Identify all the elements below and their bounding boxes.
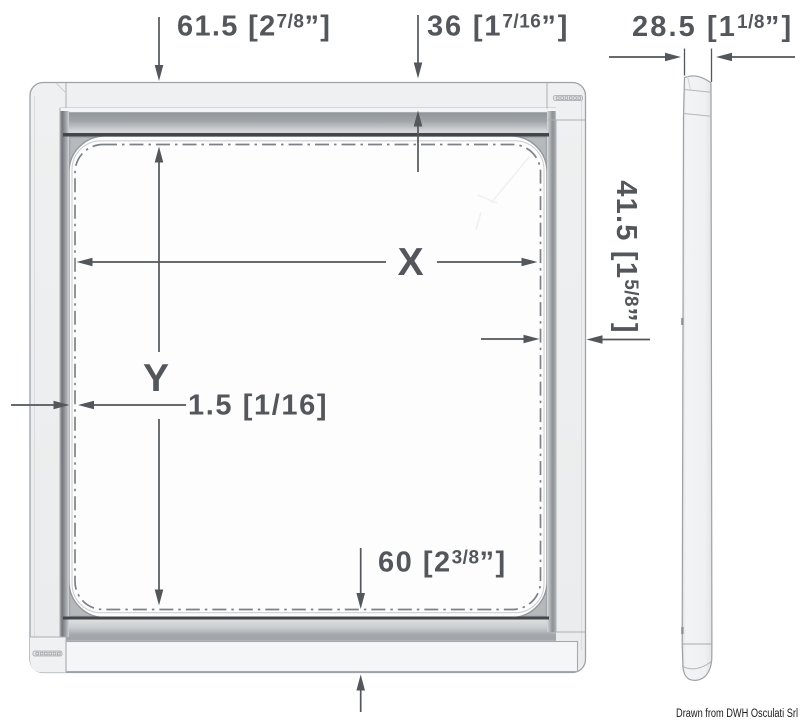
- svg-text:41.5 [15/8”]: 41.5 [15/8”]: [610, 180, 642, 334]
- svg-text:1.5 [1/16]: 1.5 [1/16]: [188, 390, 328, 422]
- svg-text:Drawn from DWH Osculati Srl: Drawn from DWH Osculati Srl: [676, 707, 798, 720]
- svg-text:61.5 [27/8”]: 61.5 [27/8”]: [177, 11, 331, 43]
- svg-text:28.5 [11/8”]: 28.5 [11/8”]: [632, 11, 793, 43]
- svg-text:X: X: [398, 241, 424, 284]
- svg-text:36 [17/16”]: 36 [17/16”]: [427, 11, 569, 43]
- svg-text:60 [23/8”]: 60 [23/8”]: [378, 547, 507, 579]
- svg-text:Y: Y: [143, 357, 169, 400]
